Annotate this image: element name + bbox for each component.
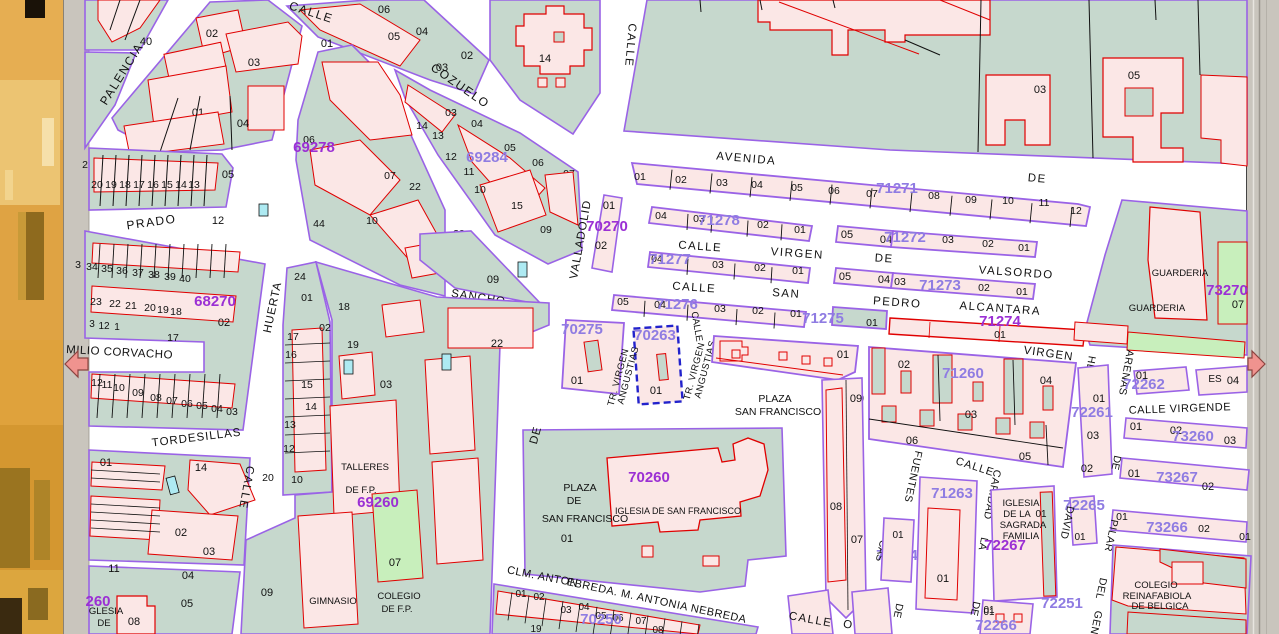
svg-text:16: 16 (147, 179, 159, 191)
svg-text:08: 08 (928, 190, 940, 202)
svg-text:TALLERES: TALLERES (341, 462, 389, 473)
svg-text:35: 35 (101, 263, 113, 275)
svg-text:GIMNASIO: GIMNASIO (309, 596, 357, 607)
svg-text:14: 14 (416, 120, 428, 132)
svg-text:22: 22 (109, 298, 121, 310)
svg-text:02: 02 (206, 28, 218, 40)
svg-text:04: 04 (211, 403, 223, 415)
svg-text:09: 09 (850, 393, 862, 405)
svg-text:03: 03 (894, 276, 906, 288)
svg-text:71276: 71276 (656, 296, 698, 313)
svg-text:11: 11 (108, 563, 119, 575)
svg-text:18: 18 (338, 301, 350, 313)
svg-text:22: 22 (409, 181, 421, 193)
svg-text:02: 02 (218, 317, 230, 329)
svg-text:08: 08 (830, 501, 842, 513)
svg-text:38: 38 (148, 269, 160, 281)
svg-text:01: 01 (794, 224, 806, 236)
svg-text:69278: 69278 (293, 139, 335, 156)
svg-text:03: 03 (712, 259, 724, 271)
svg-text:DE: DE (1027, 172, 1047, 186)
svg-text:07: 07 (851, 534, 863, 546)
svg-text:03: 03 (203, 546, 215, 558)
svg-text:68270: 68270 (194, 293, 236, 310)
svg-text:03: 03 (226, 406, 238, 418)
svg-text:01: 01 (603, 200, 615, 212)
svg-text:02: 02 (898, 359, 910, 371)
svg-text:73267: 73267 (1156, 469, 1198, 486)
svg-text:01: 01 (866, 317, 878, 329)
svg-text:02: 02 (461, 50, 473, 62)
svg-text:04: 04 (1227, 375, 1239, 387)
svg-text:IGLESIA DE SAN FRANCISCO: IGLESIA DE SAN FRANCISCO (615, 506, 741, 516)
svg-text:GUARDERIA: GUARDERIA (1129, 303, 1186, 314)
svg-text:02: 02 (982, 238, 994, 250)
svg-text:71277: 71277 (649, 251, 691, 268)
svg-text:02: 02 (757, 219, 769, 231)
svg-text:01: 01 (792, 265, 804, 277)
svg-text:01: 01 (1128, 468, 1140, 480)
svg-text:13: 13 (432, 130, 444, 142)
svg-text:19: 19 (105, 179, 117, 191)
svg-text:ES: ES (1208, 374, 1222, 385)
svg-text:13: 13 (188, 179, 200, 191)
svg-text:02: 02 (1081, 463, 1093, 475)
svg-text:01: 01 (837, 349, 849, 361)
svg-text:01: 01 (994, 329, 1006, 341)
svg-text:03: 03 (445, 107, 457, 119)
svg-text:71272: 71272 (884, 229, 926, 246)
svg-text:01: 01 (1035, 509, 1047, 520)
svg-text:04: 04 (416, 26, 428, 38)
svg-text:PLAZA: PLAZA (758, 393, 791, 405)
svg-text:11: 11 (102, 379, 113, 391)
svg-text:36: 36 (116, 265, 128, 277)
svg-text:07: 07 (635, 616, 647, 627)
svg-text:01: 01 (1016, 286, 1028, 298)
svg-text:17: 17 (287, 331, 299, 343)
svg-text:04: 04 (1040, 375, 1052, 387)
svg-text:72267: 72267 (984, 537, 1026, 554)
svg-text:05: 05 (181, 598, 193, 610)
svg-text:07: 07 (1232, 299, 1244, 311)
svg-text:12: 12 (1070, 205, 1082, 217)
svg-text:20: 20 (91, 179, 103, 191)
svg-text:07: 07 (389, 557, 401, 569)
svg-text:73260: 73260 (1172, 428, 1214, 445)
svg-text:40: 40 (179, 273, 191, 285)
svg-text:DE: DE (874, 252, 894, 265)
svg-text:02: 02 (978, 282, 990, 294)
svg-text:SAN: SAN (772, 287, 801, 301)
svg-text:04: 04 (182, 570, 194, 582)
svg-text:70250: 70250 (580, 611, 622, 628)
svg-text:COLEGIO: COLEGIO (1134, 580, 1177, 591)
svg-text:05: 05 (1128, 70, 1140, 82)
svg-text:20: 20 (144, 302, 156, 314)
svg-text:01: 01 (1074, 532, 1086, 543)
svg-text:07: 07 (166, 395, 178, 407)
svg-text:14: 14 (539, 53, 551, 65)
svg-text:09: 09 (540, 224, 552, 236)
svg-text:20: 20 (262, 472, 274, 484)
svg-text:09: 09 (261, 587, 273, 599)
svg-text:08: 08 (652, 625, 664, 634)
svg-text:05: 05 (1019, 451, 1031, 463)
svg-text:DE F.P.: DE F.P. (382, 604, 413, 615)
svg-text:39: 39 (164, 271, 176, 283)
svg-text:03: 03 (1087, 430, 1099, 442)
svg-text:71271: 71271 (876, 180, 918, 197)
svg-text:34: 34 (86, 261, 98, 273)
svg-text:02: 02 (752, 305, 764, 317)
svg-text:DE: DE (567, 495, 582, 507)
svg-text:01: 01 (1239, 531, 1251, 543)
svg-text:SAN FRANCISCO: SAN FRANCISCO (735, 406, 821, 418)
svg-text:37: 37 (132, 267, 144, 279)
svg-text:03: 03 (942, 234, 954, 246)
svg-text:06: 06 (828, 185, 840, 197)
svg-text:COLEGIO: COLEGIO (377, 591, 420, 602)
svg-text:09: 09 (487, 274, 499, 286)
svg-text:23: 23 (90, 296, 102, 308)
svg-text:10: 10 (366, 215, 378, 227)
svg-text:01: 01 (1018, 242, 1030, 254)
svg-text:05: 05 (196, 400, 208, 412)
svg-text:01: 01 (650, 385, 662, 397)
svg-text:05: 05 (222, 169, 234, 181)
svg-text:71260: 71260 (942, 365, 984, 382)
svg-text:12: 12 (212, 215, 224, 227)
svg-text:16: 16 (285, 349, 297, 361)
svg-text:07: 07 (384, 170, 396, 182)
svg-text:14: 14 (195, 462, 207, 474)
svg-text:10: 10 (474, 184, 486, 196)
svg-text:05: 05 (791, 182, 803, 194)
svg-text:14: 14 (175, 179, 187, 191)
svg-text:08: 08 (150, 392, 162, 404)
svg-text:GUARDERIA: GUARDERIA (1152, 268, 1209, 279)
svg-text:12: 12 (98, 321, 110, 332)
svg-text:15: 15 (301, 379, 313, 391)
svg-text:18: 18 (119, 179, 131, 191)
svg-text:12: 12 (445, 151, 457, 163)
svg-text:01: 01 (515, 589, 527, 600)
svg-text:02: 02 (319, 322, 331, 334)
svg-text:72251: 72251 (1041, 595, 1083, 612)
svg-text:02: 02 (533, 592, 545, 603)
svg-text:15: 15 (161, 179, 173, 191)
svg-text:09: 09 (132, 387, 144, 399)
svg-text:03: 03 (965, 409, 977, 421)
svg-text:DE: DE (97, 618, 110, 629)
svg-text:03: 03 (248, 57, 260, 69)
svg-text:70270: 70270 (586, 218, 628, 235)
svg-text:05: 05 (839, 271, 851, 283)
svg-text:03: 03 (380, 379, 392, 391)
svg-text:10: 10 (291, 474, 303, 486)
svg-text:03: 03 (1034, 84, 1046, 96)
svg-text:71278: 71278 (698, 212, 740, 229)
svg-text:3: 3 (89, 319, 95, 330)
svg-text:69260: 69260 (357, 494, 399, 511)
svg-text:01: 01 (561, 533, 573, 545)
svg-text:DE BELGICA: DE BELGICA (1131, 601, 1189, 612)
svg-text:71263: 71263 (931, 485, 973, 502)
svg-text:01: 01 (301, 292, 313, 304)
svg-text:01: 01 (983, 607, 995, 618)
svg-text:06: 06 (532, 157, 544, 169)
svg-text:01: 01 (790, 308, 802, 320)
svg-text:PLAZA: PLAZA (563, 482, 596, 494)
svg-text:02: 02 (675, 174, 687, 186)
svg-text:SAGRADA: SAGRADA (1000, 520, 1047, 531)
svg-text:08: 08 (128, 616, 140, 628)
svg-text:19: 19 (347, 339, 359, 351)
svg-text:69284: 69284 (466, 149, 508, 166)
svg-text:01: 01 (100, 457, 112, 469)
svg-text:02: 02 (1198, 523, 1210, 535)
svg-text:21: 21 (125, 300, 137, 312)
svg-text:72261: 72261 (1071, 404, 1113, 421)
svg-text:17: 17 (167, 332, 179, 344)
svg-text:72266: 72266 (975, 617, 1017, 634)
svg-text:18: 18 (170, 306, 182, 318)
svg-text:03: 03 (714, 303, 726, 315)
svg-text:260: 260 (85, 593, 110, 610)
svg-text:04: 04 (237, 118, 249, 130)
svg-text:72262: 72262 (1123, 376, 1165, 393)
svg-text:DE LA: DE LA (1003, 509, 1031, 520)
svg-text:73266: 73266 (1146, 519, 1188, 536)
svg-text:05: 05 (617, 296, 629, 308)
svg-text:05: 05 (388, 31, 400, 43)
svg-text:01: 01 (571, 375, 583, 387)
svg-text:1: 1 (114, 322, 120, 333)
svg-text:15: 15 (511, 200, 523, 212)
svg-text:02: 02 (595, 240, 607, 252)
svg-text:06: 06 (378, 4, 390, 16)
svg-text:19: 19 (157, 304, 169, 316)
svg-text:04: 04 (655, 210, 667, 222)
svg-text:3: 3 (75, 259, 81, 271)
svg-text:03: 03 (716, 177, 728, 189)
svg-text:04: 04 (471, 118, 483, 130)
svg-text:17: 17 (133, 179, 145, 191)
svg-text:13: 13 (284, 419, 296, 431)
svg-text:03: 03 (1224, 435, 1236, 447)
svg-text:10: 10 (1002, 195, 1014, 207)
svg-text:10: 10 (113, 382, 125, 394)
svg-text:19: 19 (530, 624, 542, 634)
svg-text:71274: 71274 (979, 313, 1021, 330)
svg-text:03: 03 (560, 605, 572, 616)
svg-text:01: 01 (321, 38, 333, 50)
svg-text:24: 24 (294, 271, 306, 283)
svg-text:01: 01 (634, 171, 646, 183)
svg-text:11: 11 (1039, 197, 1050, 209)
svg-text:70275: 70275 (561, 321, 603, 338)
svg-text:09: 09 (965, 194, 977, 206)
svg-text:04: 04 (878, 274, 890, 286)
svg-text:01: 01 (892, 530, 904, 541)
svg-text:02: 02 (175, 527, 187, 539)
svg-text:11: 11 (464, 166, 475, 178)
svg-text:71275: 71275 (802, 310, 844, 327)
svg-text:02: 02 (754, 262, 766, 274)
svg-text:71273: 71273 (919, 277, 961, 294)
svg-text:22: 22 (491, 338, 503, 350)
svg-text:06: 06 (906, 435, 918, 447)
svg-text:44: 44 (313, 218, 325, 230)
svg-text:01: 01 (937, 573, 949, 585)
svg-text:IGLESIA: IGLESIA (1003, 498, 1041, 509)
svg-text:73270: 73270 (1206, 282, 1248, 299)
svg-text:14: 14 (305, 401, 317, 413)
svg-text:04: 04 (751, 179, 763, 191)
svg-text:06: 06 (181, 398, 193, 410)
svg-text:70263: 70263 (634, 327, 676, 344)
svg-text:02: 02 (1202, 481, 1214, 493)
svg-text:01: 01 (1130, 421, 1142, 433)
svg-text:05: 05 (841, 229, 853, 241)
svg-text:70260: 70260 (628, 469, 670, 486)
